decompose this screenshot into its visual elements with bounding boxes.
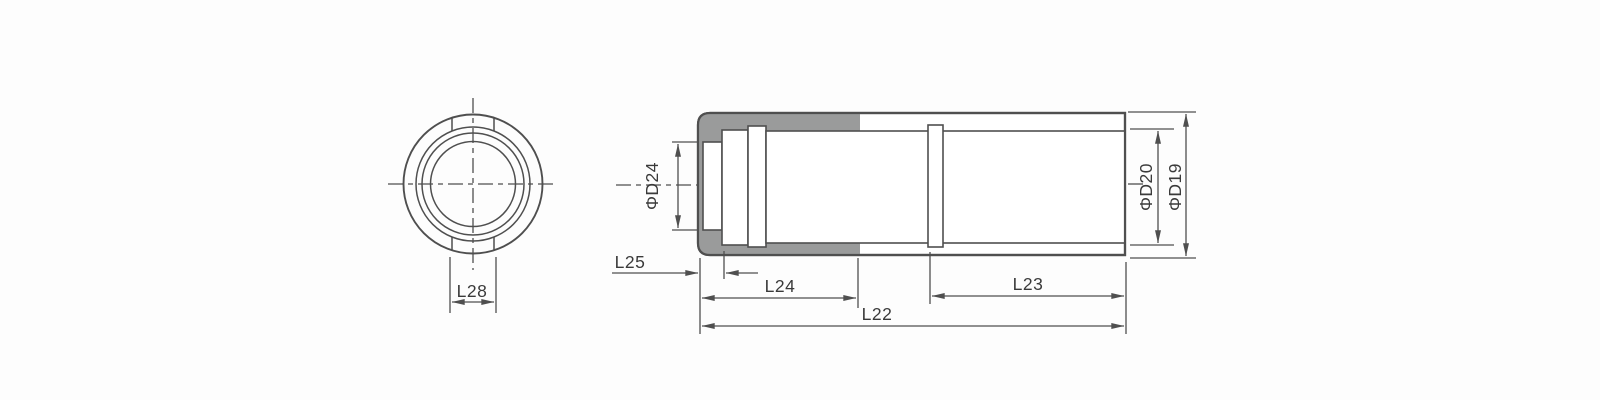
dimension-l28: L28	[450, 257, 496, 313]
l25-label: L25	[615, 252, 646, 272]
drawing-canvas: L28 ΦD24 ΦD20	[0, 0, 1600, 400]
l24-label: L24	[765, 276, 796, 296]
dimension-d24: ΦD24	[642, 142, 697, 230]
retaining-ring	[928, 125, 943, 247]
insert-ring-cut	[748, 126, 766, 247]
front-opening-cut	[703, 142, 722, 230]
front-view: L28	[388, 98, 558, 313]
side-section-view: ΦD24 ΦD20 ΦD19 L25 L24	[612, 112, 1196, 334]
dimension-l23: L23	[932, 274, 1124, 296]
dimension-l24: L24	[702, 276, 856, 298]
d24-label: ΦD24	[642, 162, 662, 210]
d19-label: ΦD19	[1165, 163, 1185, 211]
dimension-l22: L22	[702, 304, 1124, 326]
l22-label: L22	[862, 304, 893, 324]
d24-extension-lines	[672, 142, 697, 230]
insulator-ring-cut	[722, 130, 748, 245]
technical-drawing: L28 ΦD24 ΦD20	[0, 0, 1600, 400]
inner-bore-cut	[766, 131, 1125, 243]
l23-label: L23	[1013, 274, 1044, 294]
l28-label: L28	[457, 281, 488, 301]
d20-label: ΦD20	[1136, 163, 1156, 211]
